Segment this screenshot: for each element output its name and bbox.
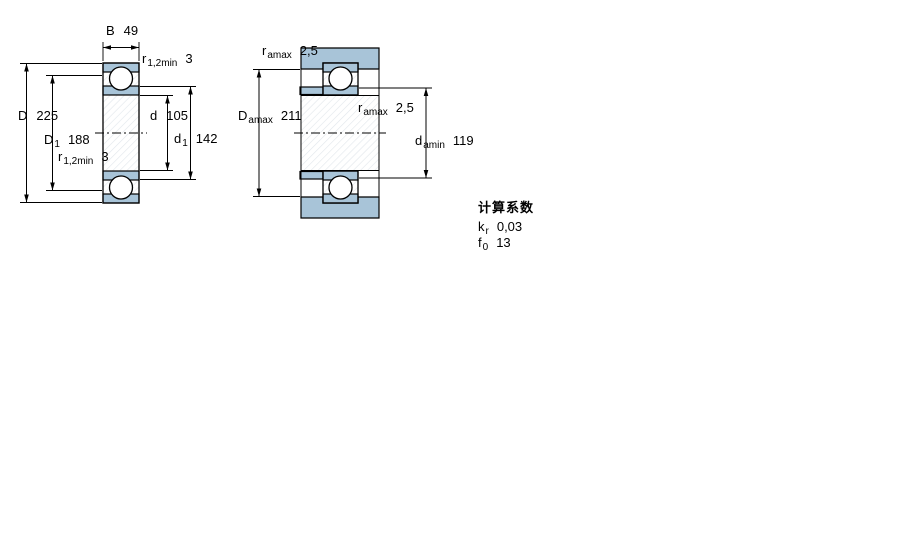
calc-factor-f0: f013	[478, 235, 511, 250]
dim-label-damin: damin119	[415, 134, 474, 150]
calculation-factors-heading: 计算系数	[478, 197, 534, 216]
dim-label-r12min-top: r1,2min3	[142, 52, 193, 68]
dim-label-Damax: Damax211	[238, 109, 302, 125]
bearing-technical-drawing	[0, 0, 900, 560]
dim-label-D1: D1188	[44, 133, 90, 149]
dim-label-d: d105	[150, 109, 188, 125]
drawing-area: B49 r1,2min3 D225 D1188 r1,2min3 d105 d1…	[0, 0, 900, 560]
dim-label-D: D225	[18, 109, 58, 125]
shaft-shoulder-bottom	[300, 172, 323, 180]
ball-top	[329, 67, 352, 90]
shaft-shoulder-top	[300, 87, 323, 95]
ball-bottom	[110, 176, 133, 199]
calc-factor-kr: kr0,03	[478, 219, 522, 234]
ball-bottom	[329, 176, 352, 199]
ball-top	[110, 67, 133, 90]
right-figure-abutment-dimensions	[253, 48, 432, 218]
dim-label-d1: d1142	[174, 132, 218, 148]
dim-label-ramax-mid: ramax2,5	[358, 101, 414, 117]
dim-label-B: B49	[106, 24, 138, 40]
dim-label-r12min-bottom: r1,2min3	[58, 150, 109, 166]
dim-label-ramax-top: ramax2,5	[262, 44, 318, 60]
